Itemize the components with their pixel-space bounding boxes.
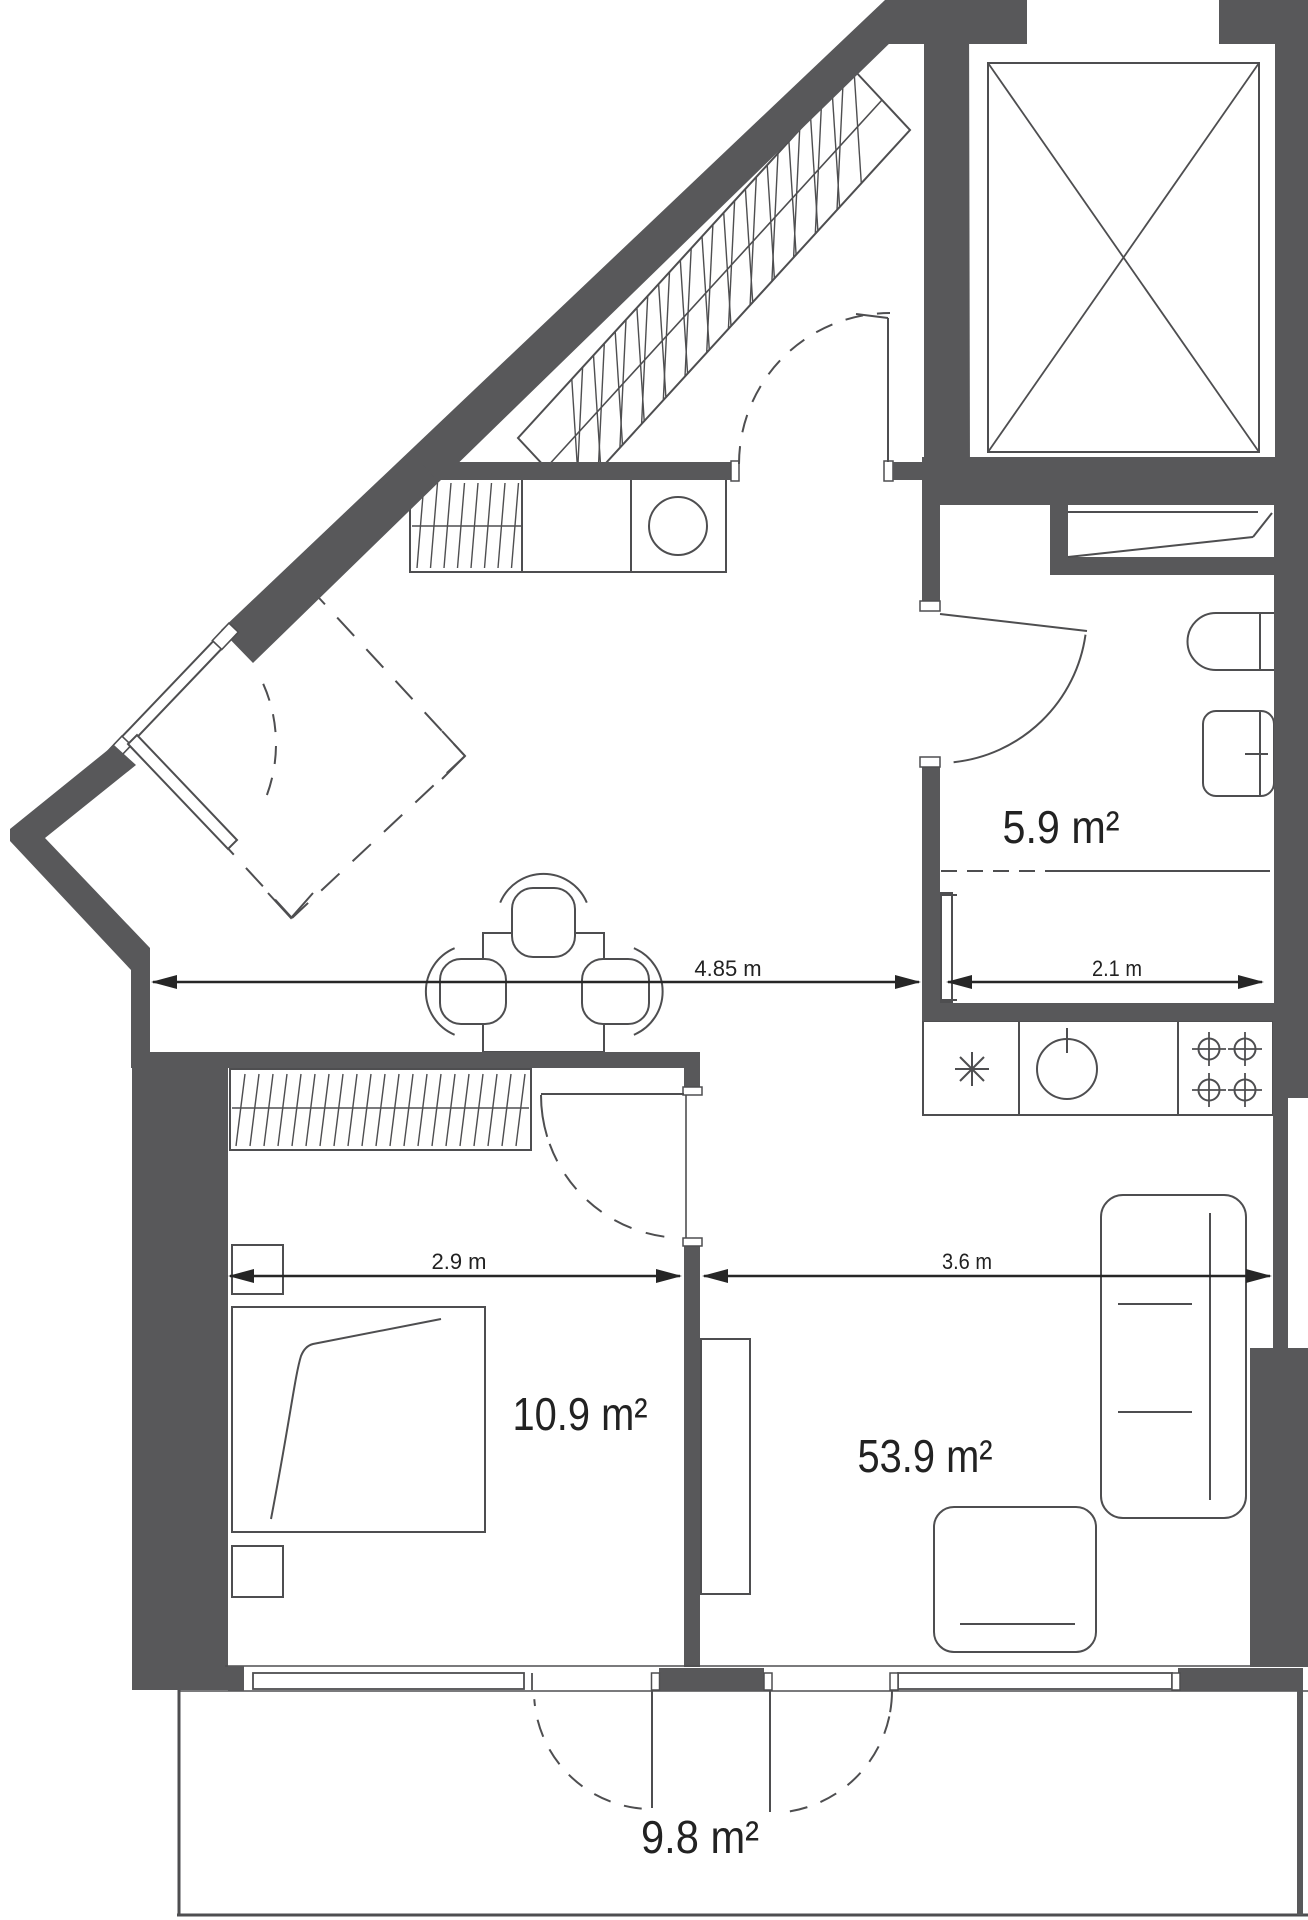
svg-text:9.8 m²: 9.8 m² [641, 1811, 759, 1863]
svg-text:53.9 m²: 53.9 m² [858, 1430, 993, 1482]
svg-text:10.9 m²: 10.9 m² [513, 1388, 648, 1440]
svg-text:2.9 m: 2.9 m [431, 1249, 486, 1274]
svg-text:2.1 m: 2.1 m [1092, 956, 1142, 981]
svg-text:5.9 m²: 5.9 m² [1003, 801, 1120, 853]
svg-text:4.85 m: 4.85 m [694, 956, 761, 981]
svg-text:3.6 m: 3.6 m [942, 1249, 992, 1274]
